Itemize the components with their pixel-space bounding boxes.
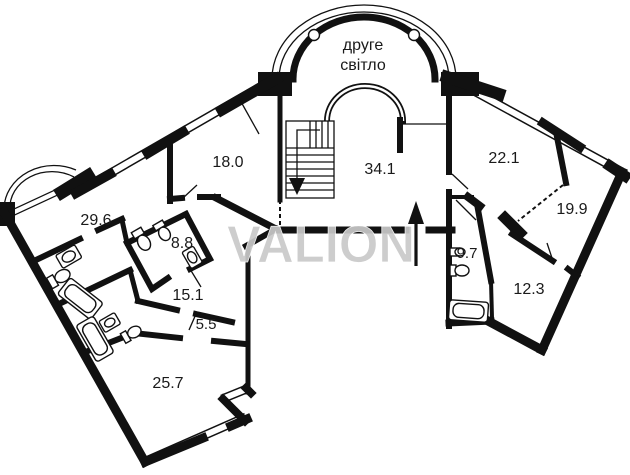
central-walls xyxy=(276,79,452,326)
room-label-34-1: 34.1 xyxy=(364,161,395,178)
room-label-18-0: 18.0 xyxy=(212,154,243,171)
floor-plan-page: друге світло 29.6 18.0 8.8 15.1 5.5 25.7… xyxy=(0,0,630,475)
column-icon xyxy=(309,30,320,41)
door-leaves xyxy=(183,100,553,330)
room-label-15-1: 15.1 xyxy=(172,287,203,304)
second-light-label: світло xyxy=(340,57,386,74)
column-icon xyxy=(409,30,420,41)
room-label-25-7: 25.7 xyxy=(152,375,183,392)
room-label-22-1: 22.1 xyxy=(488,150,519,167)
floor-plan-canvas: друге світло 29.6 18.0 8.8 15.1 5.5 25.7… xyxy=(0,0,630,475)
room-label-9-7: 9.7 xyxy=(457,245,478,262)
valion-watermark: VALION xyxy=(227,216,415,274)
room-labels: друге світло 29.6 18.0 8.8 15.1 5.5 25.7… xyxy=(80,37,587,392)
toilet-icon xyxy=(120,324,143,344)
inner-arch xyxy=(327,86,446,150)
sink-icon xyxy=(99,312,121,332)
room-label-12-3: 12.3 xyxy=(513,281,544,298)
second-light-label: друге xyxy=(343,37,384,54)
room-label-29-6: 29.6 xyxy=(80,212,111,229)
room-label-5-5: 5.5 xyxy=(196,316,217,333)
toilet-icon xyxy=(450,265,469,276)
staircase xyxy=(286,121,334,198)
room-label-8-8: 8.8 xyxy=(171,235,193,252)
room-label-19-9: 19.9 xyxy=(556,201,587,218)
bathtub-icon xyxy=(448,300,488,323)
